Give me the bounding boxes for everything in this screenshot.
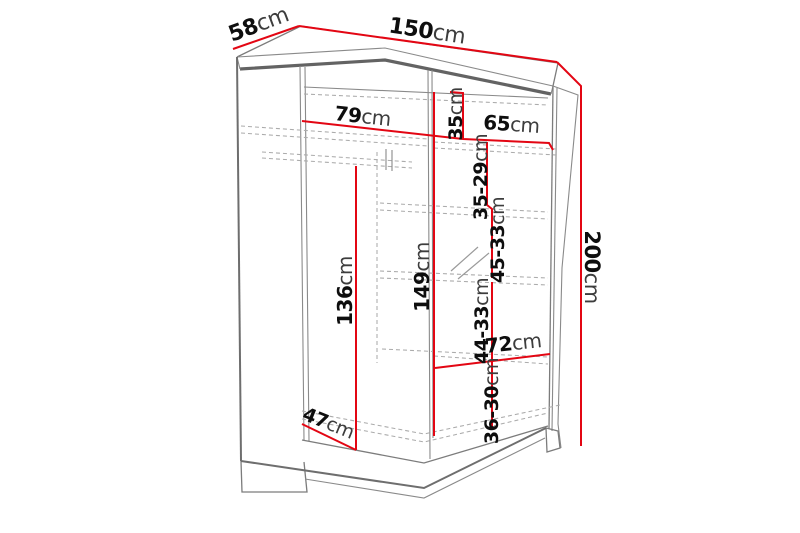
- diagram-canvas: 58cm 150cm 200cm 79cm 35cm 65cm 35-29cm …: [0, 0, 800, 533]
- dimension-unit: cm: [509, 112, 540, 138]
- dimension-unit: cm: [431, 20, 467, 50]
- dimension-label-65cm: 65cm: [483, 110, 541, 138]
- dimension-unit: cm: [333, 256, 357, 285]
- dimension-label-136cm: 136cm: [333, 256, 357, 326]
- dimension-label-35cm: 35cm: [445, 87, 467, 140]
- dimension-value: 45-33: [487, 225, 509, 283]
- dimension-unit: cm: [511, 328, 543, 355]
- dimension-unit: cm: [487, 197, 509, 225]
- wardrobe-diagram: 58cm 150cm 200cm 79cm 35cm 65cm 35-29cm …: [0, 0, 800, 533]
- dimension-value: 36-30: [481, 386, 503, 445]
- dimension-unit: cm: [410, 242, 434, 271]
- dimension-value: 35: [445, 115, 467, 140]
- dimension-label-45-33cm: 45-33cm: [487, 197, 509, 283]
- dimension-value: 72: [484, 331, 513, 358]
- dimension-unit: cm: [470, 134, 492, 162]
- dimension-unit: cm: [580, 273, 604, 304]
- dimension-unit: cm: [360, 104, 392, 131]
- dimension-label-36-30cm: 36-30cm: [481, 358, 503, 444]
- dimension-unit: cm: [445, 87, 467, 115]
- dimension-value: 200: [580, 230, 604, 272]
- dimension-value: 79: [333, 101, 362, 128]
- dimension-unit: cm: [471, 278, 493, 306]
- dimension-value: 149: [410, 272, 434, 312]
- dimension-label-149cm: 149cm: [410, 242, 434, 312]
- dimension-unit: cm: [481, 358, 503, 386]
- dimension-label-200cm: 200cm: [580, 230, 604, 303]
- page-background: [0, 0, 800, 533]
- dimension-value: 136: [333, 286, 357, 326]
- dimension-value: 65: [483, 110, 511, 136]
